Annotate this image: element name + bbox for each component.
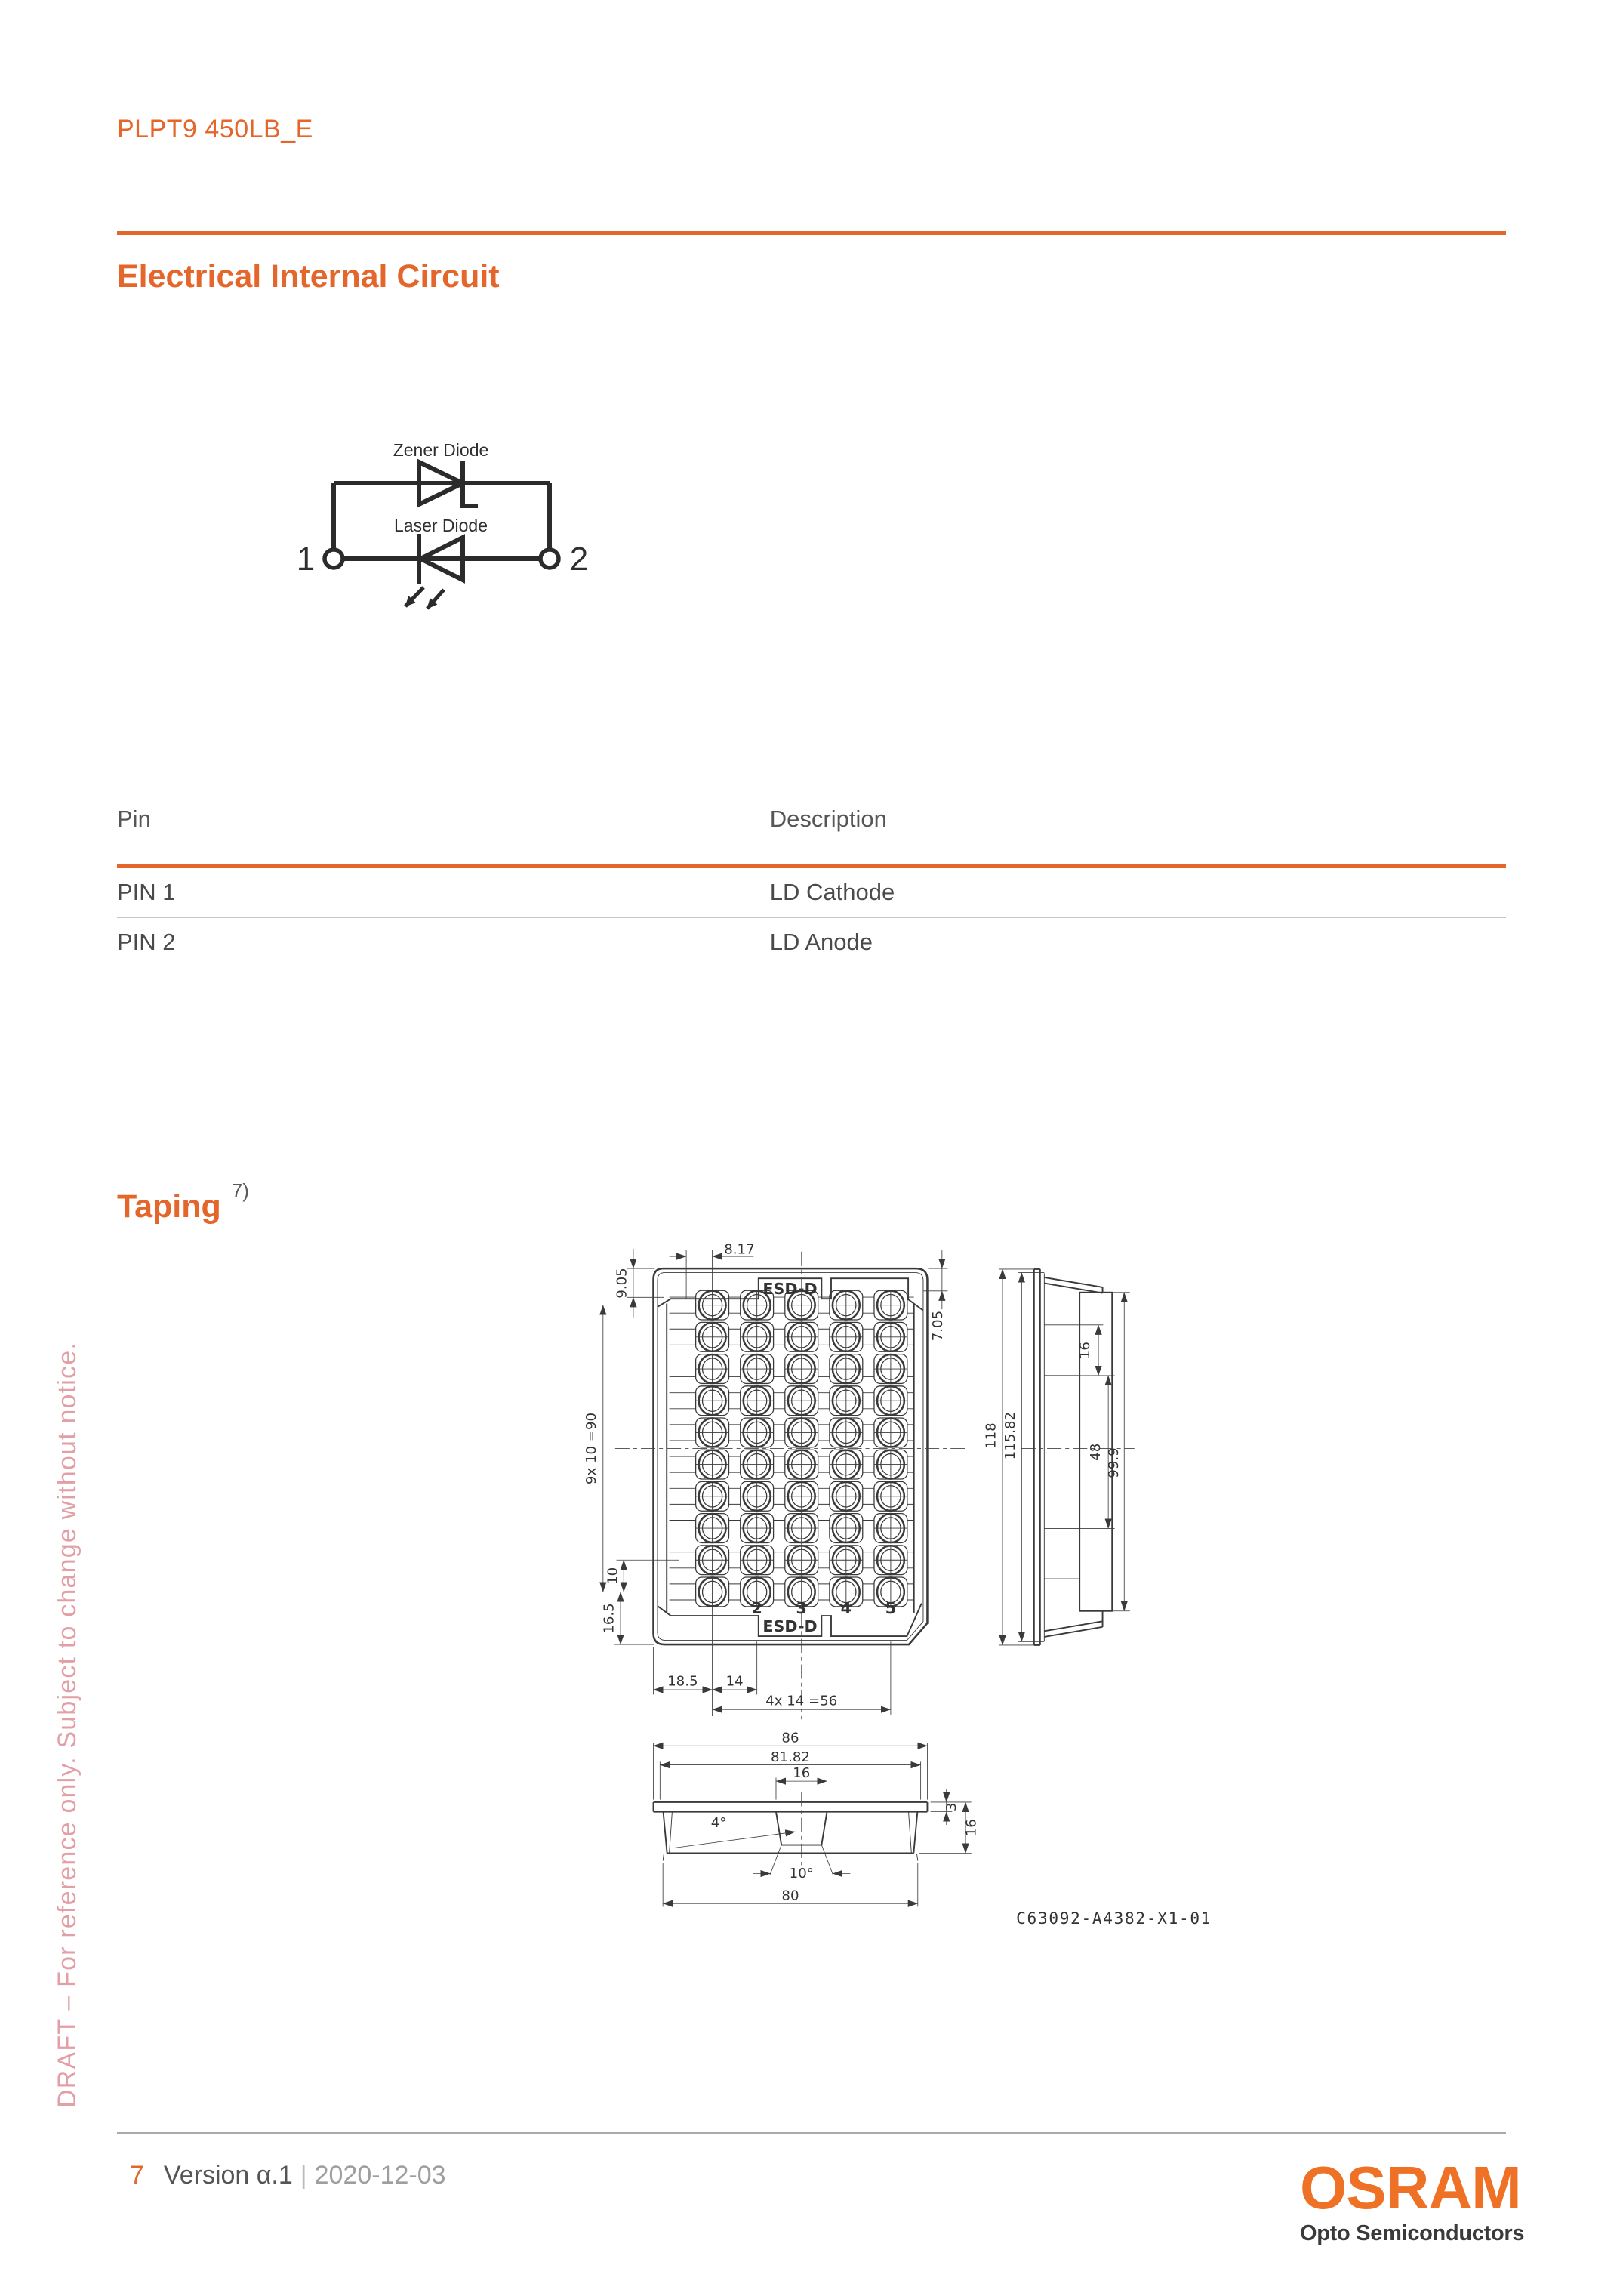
footer-rule — [117, 2132, 1506, 2134]
esd-label-bottom: ESD-D — [762, 1617, 817, 1635]
dim-rows-total: 9x 10 =90 — [584, 1413, 599, 1484]
light-emission-arrow — [405, 587, 423, 606]
osram-wordmark: OSRAM — [1300, 2158, 1524, 2218]
version-label: Version α.1 — [164, 2161, 293, 2190]
dim-col-pitch: 14 — [726, 1674, 744, 1690]
pin-table-header-pin: Pin — [117, 806, 770, 864]
dim-rim-right: 7.05 — [930, 1311, 946, 1341]
laser-diode-symbol — [405, 534, 463, 609]
section-title-taping: Taping7) — [117, 1179, 249, 1225]
light-emission-arrow — [427, 590, 444, 609]
pin-table-header: Pin Description — [117, 803, 1506, 868]
pin-2-description: LD Anode — [770, 929, 873, 956]
dim-cols-total: 4x 14 =56 — [765, 1693, 837, 1709]
dim-wall-angle: 4° — [711, 1815, 727, 1831]
product-code: PLPT9 450LB_E — [117, 115, 313, 144]
taping-title-text: Taping — [117, 1188, 221, 1225]
dim-inner-width: 81.82 — [771, 1749, 810, 1765]
dim-row-pitch: 10 — [605, 1567, 621, 1585]
dim-pocket-offset: 8.17 — [724, 1242, 754, 1258]
pin-2-number: 2 — [570, 541, 588, 578]
datasheet-page: PLPT9 450LB_E Electrical Internal Circui… — [0, 0, 1623, 2296]
footer-date: 2020-12-03 — [315, 2161, 446, 2190]
section-title-circuit: Electrical Internal Circuit — [117, 258, 500, 295]
dim-total-height: 16 — [964, 1819, 980, 1836]
terminal-2 — [540, 550, 559, 568]
dim-pocket-angle: 10° — [790, 1866, 814, 1881]
column-label: 5 — [885, 1599, 896, 1617]
header-rule — [117, 231, 1506, 235]
pin-table-row: PIN 2 LD Anode — [117, 918, 1506, 966]
dim-bottom-margin: 16.5 — [601, 1603, 617, 1633]
footer-separator: | — [300, 2161, 307, 2190]
taping-side-view: 118 115.82 16 48 99.9 — [984, 1269, 1135, 1645]
dim-side-seg-48: 48 — [1088, 1444, 1104, 1461]
pin-1-number: 1 — [297, 541, 315, 578]
dim-inner-height: 115.82 — [1002, 1412, 1018, 1459]
pin-table-header-description: Description — [770, 806, 887, 864]
osram-division: Opto Semiconductors — [1300, 2223, 1524, 2245]
taping-section-view: 86 81.82 16 4° 10° 80 3 16 C63092-A4382-… — [654, 1730, 1212, 1928]
esd-label-top: ESD-D — [762, 1280, 817, 1298]
circuit-diagram: Zener Diode Laser Diode 1 2 — [276, 408, 608, 649]
terminal-1 — [325, 550, 343, 568]
dim-width: 86 — [781, 1730, 799, 1746]
pin-2-cell: PIN 2 — [117, 929, 770, 956]
dim-side-seg-16: 16 — [1077, 1342, 1093, 1359]
page-number: 7 — [130, 2161, 144, 2190]
taping-front-view: ESD-D ESD-D 2 3 4 5 — [615, 1252, 965, 1720]
drawing-number: C63092-A4382-X1-01 — [1016, 1909, 1212, 1928]
zener-diode-label: Zener Diode — [393, 440, 489, 460]
taping-footnote: 7) — [232, 1179, 249, 1202]
laser-diode-label: Laser Diode — [394, 516, 488, 535]
column-label: 2 — [751, 1599, 762, 1617]
pin-1-description: LD Cathode — [770, 879, 895, 906]
dim-side-flange: 99.9 — [1106, 1447, 1122, 1478]
pin-table: Pin Description PIN 1 LD Cathode PIN 2 L… — [117, 803, 1506, 966]
brand-logo: OSRAM Opto Semiconductors — [1300, 2158, 1524, 2245]
draft-watermark: DRAFT – For reference only. Subject to c… — [53, 1342, 82, 2108]
dim-rim-top: 9.05 — [614, 1268, 630, 1298]
dim-bottom-width: 80 — [781, 1888, 799, 1904]
taping-drawing: ESD-D ESD-D 2 3 4 5 8. — [574, 1238, 1268, 1933]
dim-left-margin: 18.5 — [667, 1674, 698, 1690]
dim-flange-thickness: 3 — [944, 1803, 959, 1812]
dim-pocket-width: 16 — [793, 1765, 810, 1781]
pin-1-cell: PIN 1 — [117, 879, 770, 906]
column-label: 4 — [841, 1599, 852, 1617]
footer: 7Version α.1|2020-12-03 — [130, 2161, 446, 2190]
pin-table-row: PIN 1 LD Cathode — [117, 868, 1506, 918]
dim-height: 118 — [984, 1422, 999, 1449]
